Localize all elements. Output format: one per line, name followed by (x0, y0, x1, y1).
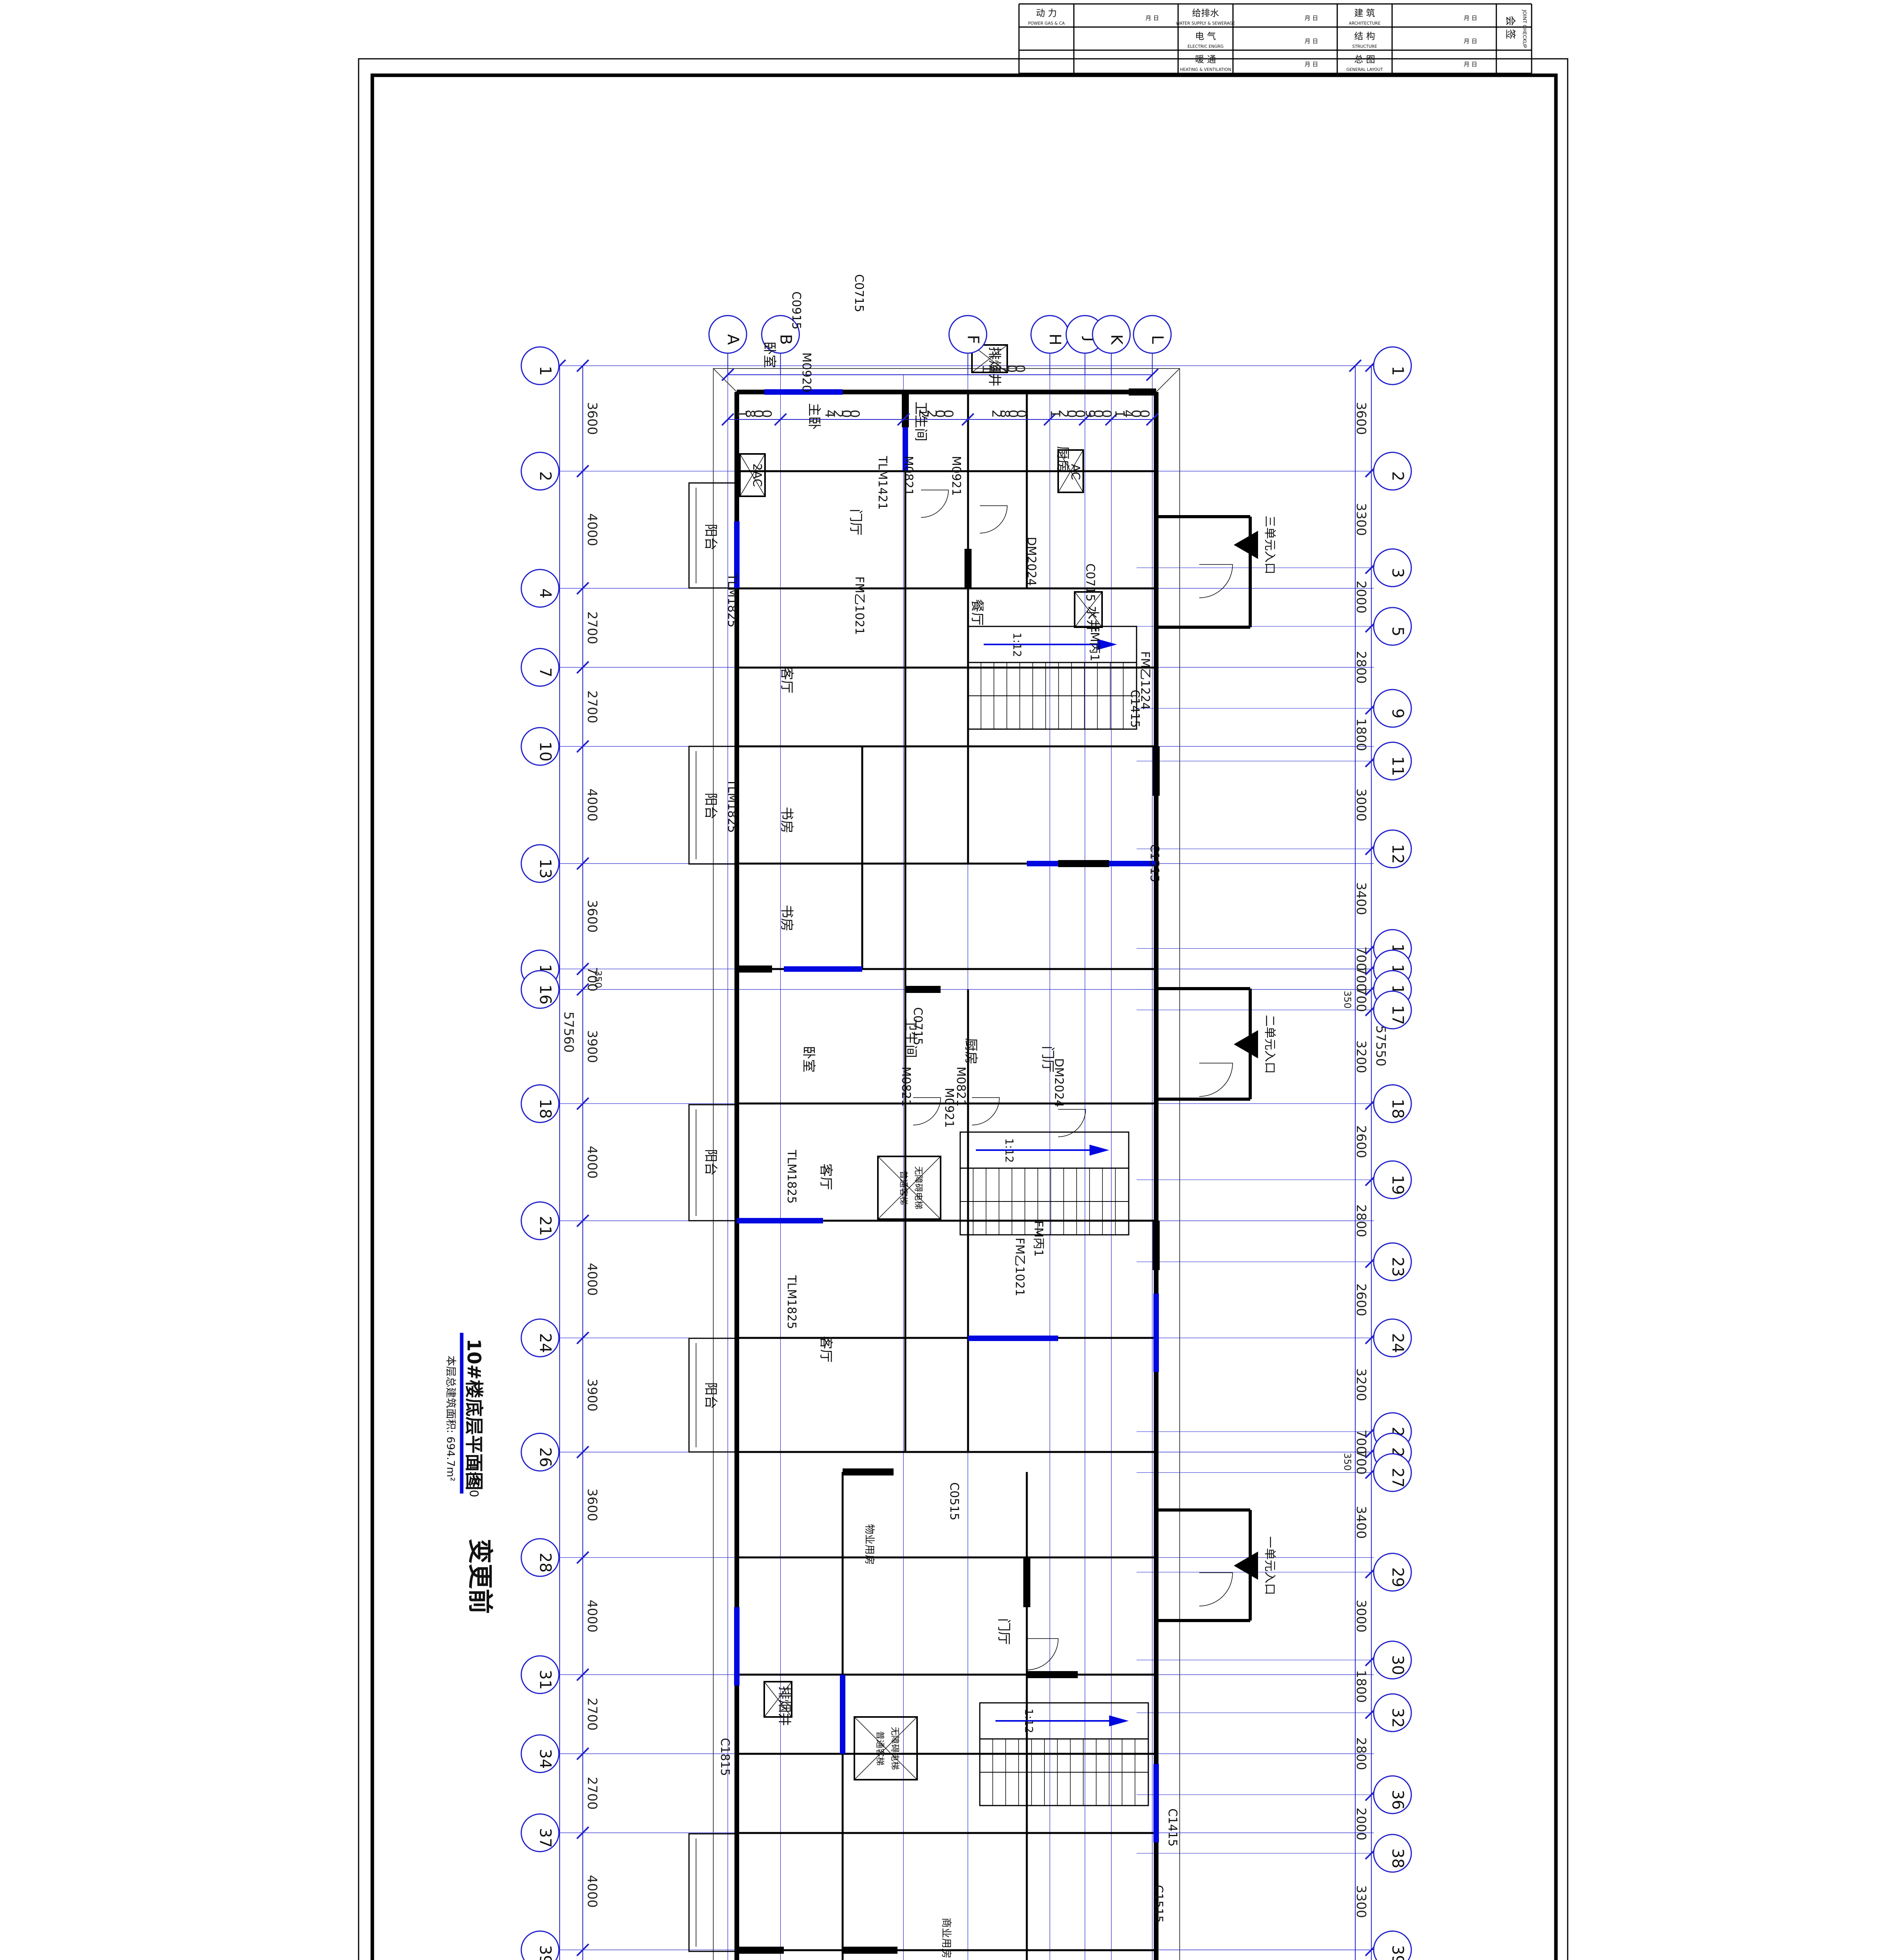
room-label: 无障碍电梯 (890, 1727, 899, 1770)
door-swing (980, 506, 1007, 533)
ramp-arrowhead (1109, 1715, 1129, 1726)
entry-triangle (1234, 1030, 1258, 1058)
dim-label-right: 2000 (1354, 581, 1369, 613)
plan-revision-note: 变更前 (465, 1539, 494, 1614)
dim-label-right: 1800 (1354, 718, 1369, 751)
dim-label-right: 3300 (1354, 1885, 1369, 1918)
door-swing (1027, 1639, 1058, 1670)
axis-bubble-label-left: 13 (536, 858, 554, 878)
axis-bubble-label-right: 11 (1389, 756, 1407, 776)
room-label: 阳台 (703, 1382, 718, 1409)
room-label: 阳台 (703, 793, 718, 819)
room-label: 普通客梯 (898, 1171, 908, 1205)
door-window-code: C1415 (1166, 1808, 1179, 1846)
axis-bubble-label-left: 4 (536, 588, 554, 598)
axis-bubble-label-left: 16 (536, 985, 554, 1005)
dim-label-right: 2800 (1354, 651, 1369, 684)
dim-label-left: 4000 (585, 789, 600, 822)
room-label: 书房 (779, 905, 794, 931)
dim-overall-left: 57560 (561, 1012, 577, 1053)
door-swing (1199, 1573, 1233, 1606)
door-window-code: FM乙1021 (1013, 1238, 1026, 1296)
room-label: 厨房 (963, 1038, 979, 1065)
dim-label-right: 2600 (1354, 1283, 1369, 1316)
joint-date-placeholder: 月 日 (1464, 38, 1478, 45)
dim-sub-label: 350 (1342, 1453, 1353, 1471)
room-label: 排烟井 (776, 1686, 792, 1726)
axis-bubble (949, 316, 987, 353)
ramp-slope-label: 1:12 (1023, 1709, 1035, 1733)
axis-bubble-label-top: F (964, 335, 982, 344)
unit-entry-label: 三单元入口 (1263, 515, 1276, 574)
joint-discipline-en: ARCHITECTURE (1349, 21, 1381, 26)
axis-bubble-label-right: 18 (1389, 1099, 1407, 1119)
axis-bubble-label-top: A (724, 334, 742, 345)
joint-date-placeholder: 月 日 (1305, 15, 1318, 22)
door-window-code: FM乙1021 (852, 576, 866, 635)
room-label: 卧室 (761, 341, 777, 368)
door-window-code: C0715 (911, 1007, 925, 1045)
joint-date-placeholder: 月 日 (1464, 61, 1478, 68)
door-window-code: M0921 (942, 1088, 956, 1128)
entry-triangle (1234, 1552, 1258, 1580)
dim-label-left: 4000 (585, 513, 600, 546)
dim-label-right: 1800 (1354, 1670, 1369, 1703)
axis-bubble-label-left: 7 (536, 668, 554, 677)
door-window-code: DM2024 (1024, 537, 1038, 586)
axis-bubble-label-top: L (1148, 335, 1166, 344)
door-swing (1199, 1063, 1233, 1096)
dim-sub-label: 350 (593, 970, 604, 988)
door-swing (972, 1098, 999, 1125)
joint-check-table: 动 力POWER GAS & CA月 日给排水WATER SUPPLY & SE… (1019, 4, 1532, 75)
dim-label-top: 1800 (734, 410, 774, 418)
dim-label-right: 3200 (1354, 1368, 1369, 1401)
door-window-code: C1515 (1151, 1885, 1165, 1923)
room-label: 客厅 (818, 1163, 834, 1190)
dim-label-top: 900 (1082, 410, 1114, 418)
axis-bubble-label-top: B (776, 334, 794, 345)
axis-bubble-label-right: 29 (1389, 1567, 1407, 1587)
dim-label-left: 4000 (585, 1875, 600, 1908)
dim-label-top: 2800 (989, 410, 1029, 418)
plan-title: 10#楼底层平面图1:100本层总建筑面积: 694.7m²变更前 (444, 1333, 494, 1614)
joint-discipline-zh: 暖 通 (1195, 54, 1216, 65)
axis-bubble-label-right: 27 (1389, 1468, 1407, 1488)
roof-diagonal (1156, 368, 1180, 392)
dim-overall-right: 57550 (1373, 1025, 1389, 1067)
axis-bubble-label-left: 26 (536, 1447, 554, 1467)
axis-bubble-label-right: 19 (1389, 1175, 1407, 1195)
dim-label-left: 2700 (585, 612, 600, 644)
dim-label-left: 3600 (585, 900, 600, 933)
door-window-code: FM丙1 (1032, 1221, 1045, 1257)
room-label: 客厅 (818, 1336, 834, 1363)
axis-bubble-label-right: 1 (1389, 366, 1407, 376)
joint-discipline-en: GENERAL LAYOUT (1346, 67, 1383, 72)
dim-label-right: 2800 (1354, 1737, 1369, 1770)
joint-discipline-zh: 动 力 (1036, 8, 1057, 18)
joint-date-placeholder: 月 日 (1305, 38, 1318, 45)
axis-bubble-label-right: 2 (1389, 471, 1407, 481)
dim-label-right: 2800 (1354, 1204, 1369, 1237)
dim-label-right: 2000 (1354, 1808, 1369, 1840)
door-window-code: TLM1825 (785, 1149, 798, 1203)
axis-bubble-label-right: 32 (1389, 1708, 1407, 1728)
door-window-code: C1415 (1128, 690, 1142, 728)
axis-bubble-label-right: 17 (1389, 1005, 1407, 1025)
joint-date-placeholder: 月 日 (1464, 15, 1478, 22)
dim-label-left: 4000 (585, 1600, 600, 1633)
door-window-code: M0920 (800, 352, 813, 392)
door-window-code: FM丙1 (1088, 625, 1101, 661)
axis-bubble-label-left: 37 (536, 1828, 554, 1848)
dim-label-right: 3300 (1354, 503, 1369, 536)
joint-discipline-en: ELECTRIC ENGRG (1188, 44, 1224, 49)
joint-discipline-zh: 结 构 (1354, 31, 1375, 42)
door-window-code: AC (1068, 464, 1082, 480)
axis-bubble-label-right: 12 (1389, 844, 1407, 864)
door-window-code: C0515 (947, 1482, 961, 1520)
ramp-arrowhead (1090, 1145, 1109, 1156)
door-window-code: C0715 (1083, 563, 1097, 601)
axis-bubble-label-right: 38 (1389, 1848, 1407, 1868)
joint-discipline-zh: 给排水 (1192, 8, 1219, 18)
axis-bubble-label-left: 1 (536, 366, 554, 376)
door-window-code: M0821 (901, 456, 915, 496)
axis-bubble-label-left: 31 (536, 1670, 554, 1690)
joint-side-label-zh: 会 签 (1504, 16, 1516, 39)
axis-bubble-label-top: H (1046, 334, 1064, 345)
axis-bubble-label-right: 39 (1389, 1945, 1407, 1960)
door-swing (921, 490, 948, 517)
axis-bubble-label-left: 34 (536, 1749, 554, 1769)
dim-label-left: 3600 (585, 402, 600, 435)
axis-bubble-label-right: 5 (1389, 626, 1407, 636)
joint-date-placeholder: 月 日 (1146, 15, 1159, 22)
joint-side-label-en: JOINT CHECKUP (1522, 9, 1528, 48)
dim-label-top: 1400 (1112, 410, 1152, 418)
axis-bubble-label-right: 23 (1389, 1257, 1407, 1277)
door-window-code: M0921 (949, 456, 963, 496)
room-label: 门厅 (848, 509, 863, 535)
room-label: 商业用房 (940, 1918, 952, 1958)
ramp-slope-label: 1:12 (1011, 633, 1024, 657)
dim-label-right: 2600 (1354, 1125, 1369, 1158)
dim-label-right: 3400 (1354, 882, 1369, 915)
drawing-sheet: JIHGFEDCBA动 力POWER GAS & CA月 日给排水WATER S… (0, 0, 1891, 1960)
dim-label-right: 3400 (1354, 1506, 1369, 1539)
dim-label-top: 4200 (822, 410, 862, 418)
dim-label-right: 3600 (1354, 402, 1369, 435)
dim-label-right: 3000 (1354, 789, 1369, 822)
dim-label-left: 3900 (585, 1379, 600, 1412)
room-label: 客厅 (779, 667, 794, 693)
plan-title-scale: 1:100 (467, 1463, 480, 1497)
door-window-code: M0821 (899, 1067, 913, 1107)
room-label: 门厅 (996, 1618, 1012, 1645)
dim-label-right: 3200 (1354, 1040, 1369, 1073)
unit-entry-label: 二单元入口 (1263, 1015, 1276, 1074)
axis-bubble-label-left: 39 (536, 1945, 554, 1960)
dim-label-left: 2700 (585, 1777, 600, 1810)
room-label: 无障碍电梯 (913, 1166, 923, 1209)
dim-label-right: 700 (1354, 1450, 1369, 1475)
door-window-code: C1515 (1148, 844, 1161, 882)
dim-label-right: 700 (1354, 987, 1369, 1012)
dim-label-left: 3600 (585, 1488, 600, 1521)
door-window-code: TLM1825 (785, 1275, 798, 1329)
dim-label-right: 3000 (1354, 1600, 1369, 1633)
building-plan (689, 345, 1258, 1960)
axis-bubble-label-right: 24 (1389, 1333, 1407, 1353)
axis-bubble-label-left: 21 (536, 1216, 554, 1236)
floor-plan-sheet-svg: JIHGFEDCBA动 力POWER GAS & CA月 日给排水WATER S… (0, 0, 1891, 1960)
dim-label-left: 4000 (585, 1263, 600, 1296)
room-label: 书房 (779, 807, 794, 833)
door-swing (913, 1098, 941, 1125)
door-window-code: TLM1825 (725, 779, 739, 833)
axis-bubble-label-right: 9 (1389, 708, 1407, 718)
joint-discipline-zh: 电 气 (1195, 31, 1216, 42)
door-window-code: C0915 (789, 291, 803, 329)
axis-bubble-label-left: 2 (536, 471, 554, 481)
dim-label-left: 2700 (585, 690, 600, 723)
axis-bubble-label-left: 18 (536, 1099, 554, 1119)
joint-discipline-en: POWER GAS & CA (1028, 21, 1065, 26)
joint-discipline-en: WATER SUPPLY & SEWERAGE (1176, 21, 1235, 26)
room-label: 厨房 (1055, 446, 1070, 473)
room-label: 卧室 (801, 1046, 816, 1073)
entry-triangle (1234, 531, 1258, 559)
room-label: 餐厅 (969, 599, 985, 626)
door-window-code: 2AC (750, 463, 764, 487)
door-window-code: TLM1825 (725, 573, 739, 627)
axis-bubble-label-left: 28 (536, 1553, 554, 1573)
joint-discipline-zh: 建 筑 (1354, 8, 1375, 18)
axis-bubble-label-top: K (1108, 334, 1126, 345)
dim-sub-label: 350 (1342, 991, 1353, 1009)
room-label: 阳台 (703, 524, 718, 550)
door-swing (1199, 564, 1233, 598)
plan-area-note: 本层总建筑面积: 694.7m² (444, 1356, 457, 1481)
room-label: 卫生间 (913, 401, 928, 441)
room-label: 排烟井 (986, 347, 1002, 387)
joint-discipline-en: HEATING & VENTILATION (1180, 67, 1231, 72)
ramp-slope-label: 1:12 (1003, 1138, 1016, 1163)
room-label: 普通客梯 (875, 1731, 885, 1766)
axis-bubble (1133, 316, 1171, 353)
door-window-code: DM2024 (1052, 1058, 1066, 1107)
door-window-code: C0715 (852, 274, 866, 312)
dim-label-left: 3900 (585, 1030, 600, 1063)
room-label: 物业用房 (863, 1524, 875, 1565)
dim-label-left: 2700 (585, 1698, 600, 1731)
axis-bubble-label-left: 24 (536, 1333, 554, 1353)
axis-bubble-label-right: 36 (1389, 1790, 1407, 1810)
joint-discipline-en: STRUCTURE (1352, 44, 1377, 49)
roof-diagonal (713, 368, 737, 392)
dim-label-top: 1200 (1048, 410, 1088, 418)
axis-bubble-label-left: 10 (536, 742, 554, 762)
door-window-code: TLM1421 (876, 456, 889, 510)
unit-entry-label: 一单元入口 (1263, 1536, 1276, 1595)
room-label: 主卧 (806, 403, 822, 430)
plan-annotations: 卧室主卧卫生间厨房门厅餐厅客厅阳台书房书房阳台卧室卫生间厨房门厅客厅阳台客厅阳台… (703, 274, 1276, 1960)
room-label: 阳台 (703, 1149, 718, 1176)
axis-bubble-label-right: 30 (1389, 1655, 1407, 1675)
axis-bubble-label-right: 3 (1389, 568, 1407, 578)
joint-date-placeholder: 月 日 (1305, 61, 1318, 68)
joint-discipline-zh: 总 图 (1354, 54, 1375, 65)
door-window-code: C1815 (718, 1738, 732, 1776)
dim-label-left: 4000 (585, 1146, 600, 1179)
